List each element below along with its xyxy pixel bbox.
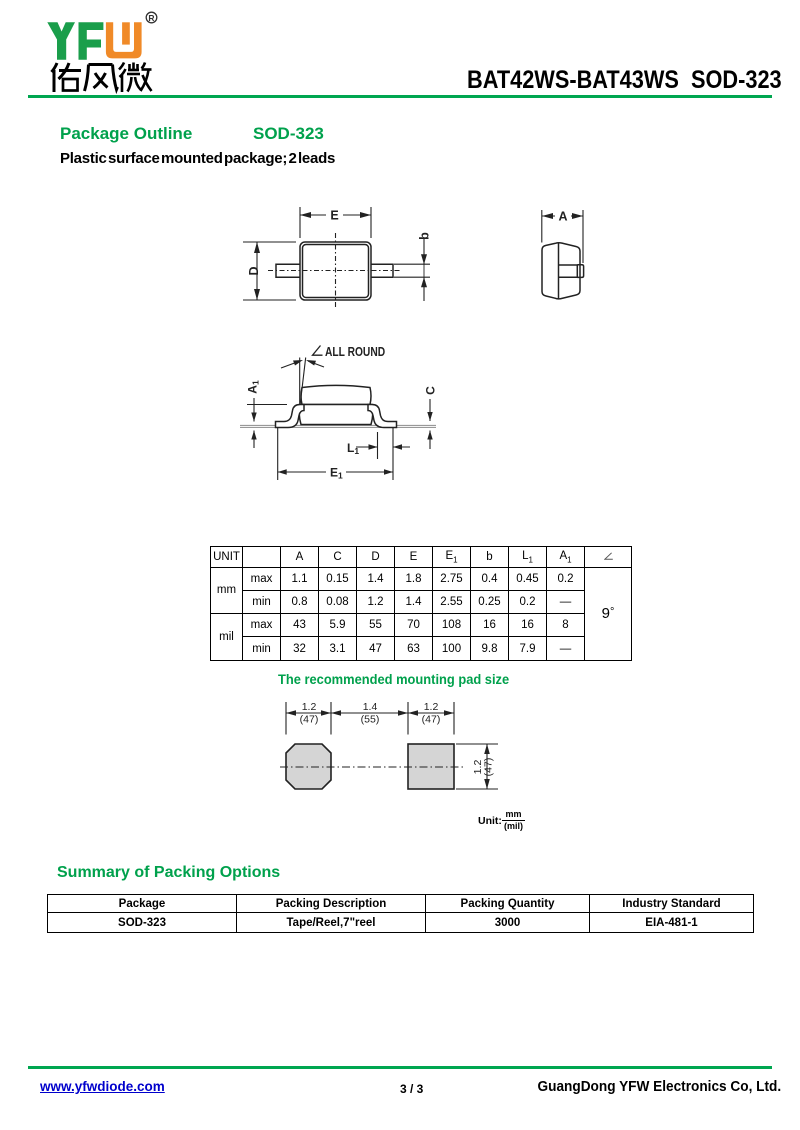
svg-text:A1: A1 [245,380,260,394]
svg-text:b: b [417,232,431,240]
svg-text:(47): (47) [483,758,495,777]
svg-text:1.4: 1.4 [363,701,378,713]
svg-text:1.2: 1.2 [302,701,317,713]
svg-text:1.2: 1.2 [424,701,439,713]
svg-text:A: A [558,210,567,224]
svg-text:(47): (47) [300,714,319,726]
svg-text:(47): (47) [422,714,441,726]
svg-text:(55): (55) [361,714,380,726]
svg-text:ALL ROUND: ALL ROUND [325,346,385,359]
svg-text:C: C [423,386,437,395]
svg-text:E: E [330,209,338,223]
svg-text:L1: L1 [347,441,359,456]
svg-text:R: R [148,13,154,23]
svg-text:D: D [247,266,261,275]
